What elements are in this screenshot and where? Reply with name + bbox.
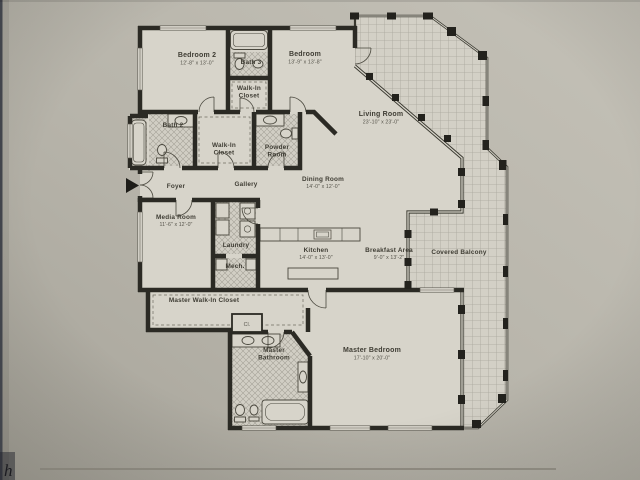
photo-artifacts: h (0, 0, 640, 480)
floor-plan-drawing: Bedroom 2 12'-8" x 13'-0" Bath 3 Bedroom… (0, 0, 640, 480)
floor-plan-photo: Bedroom 2 12'-8" x 13'-0" Bath 3 Bedroom… (0, 0, 640, 480)
corner-mark: h (4, 461, 13, 480)
